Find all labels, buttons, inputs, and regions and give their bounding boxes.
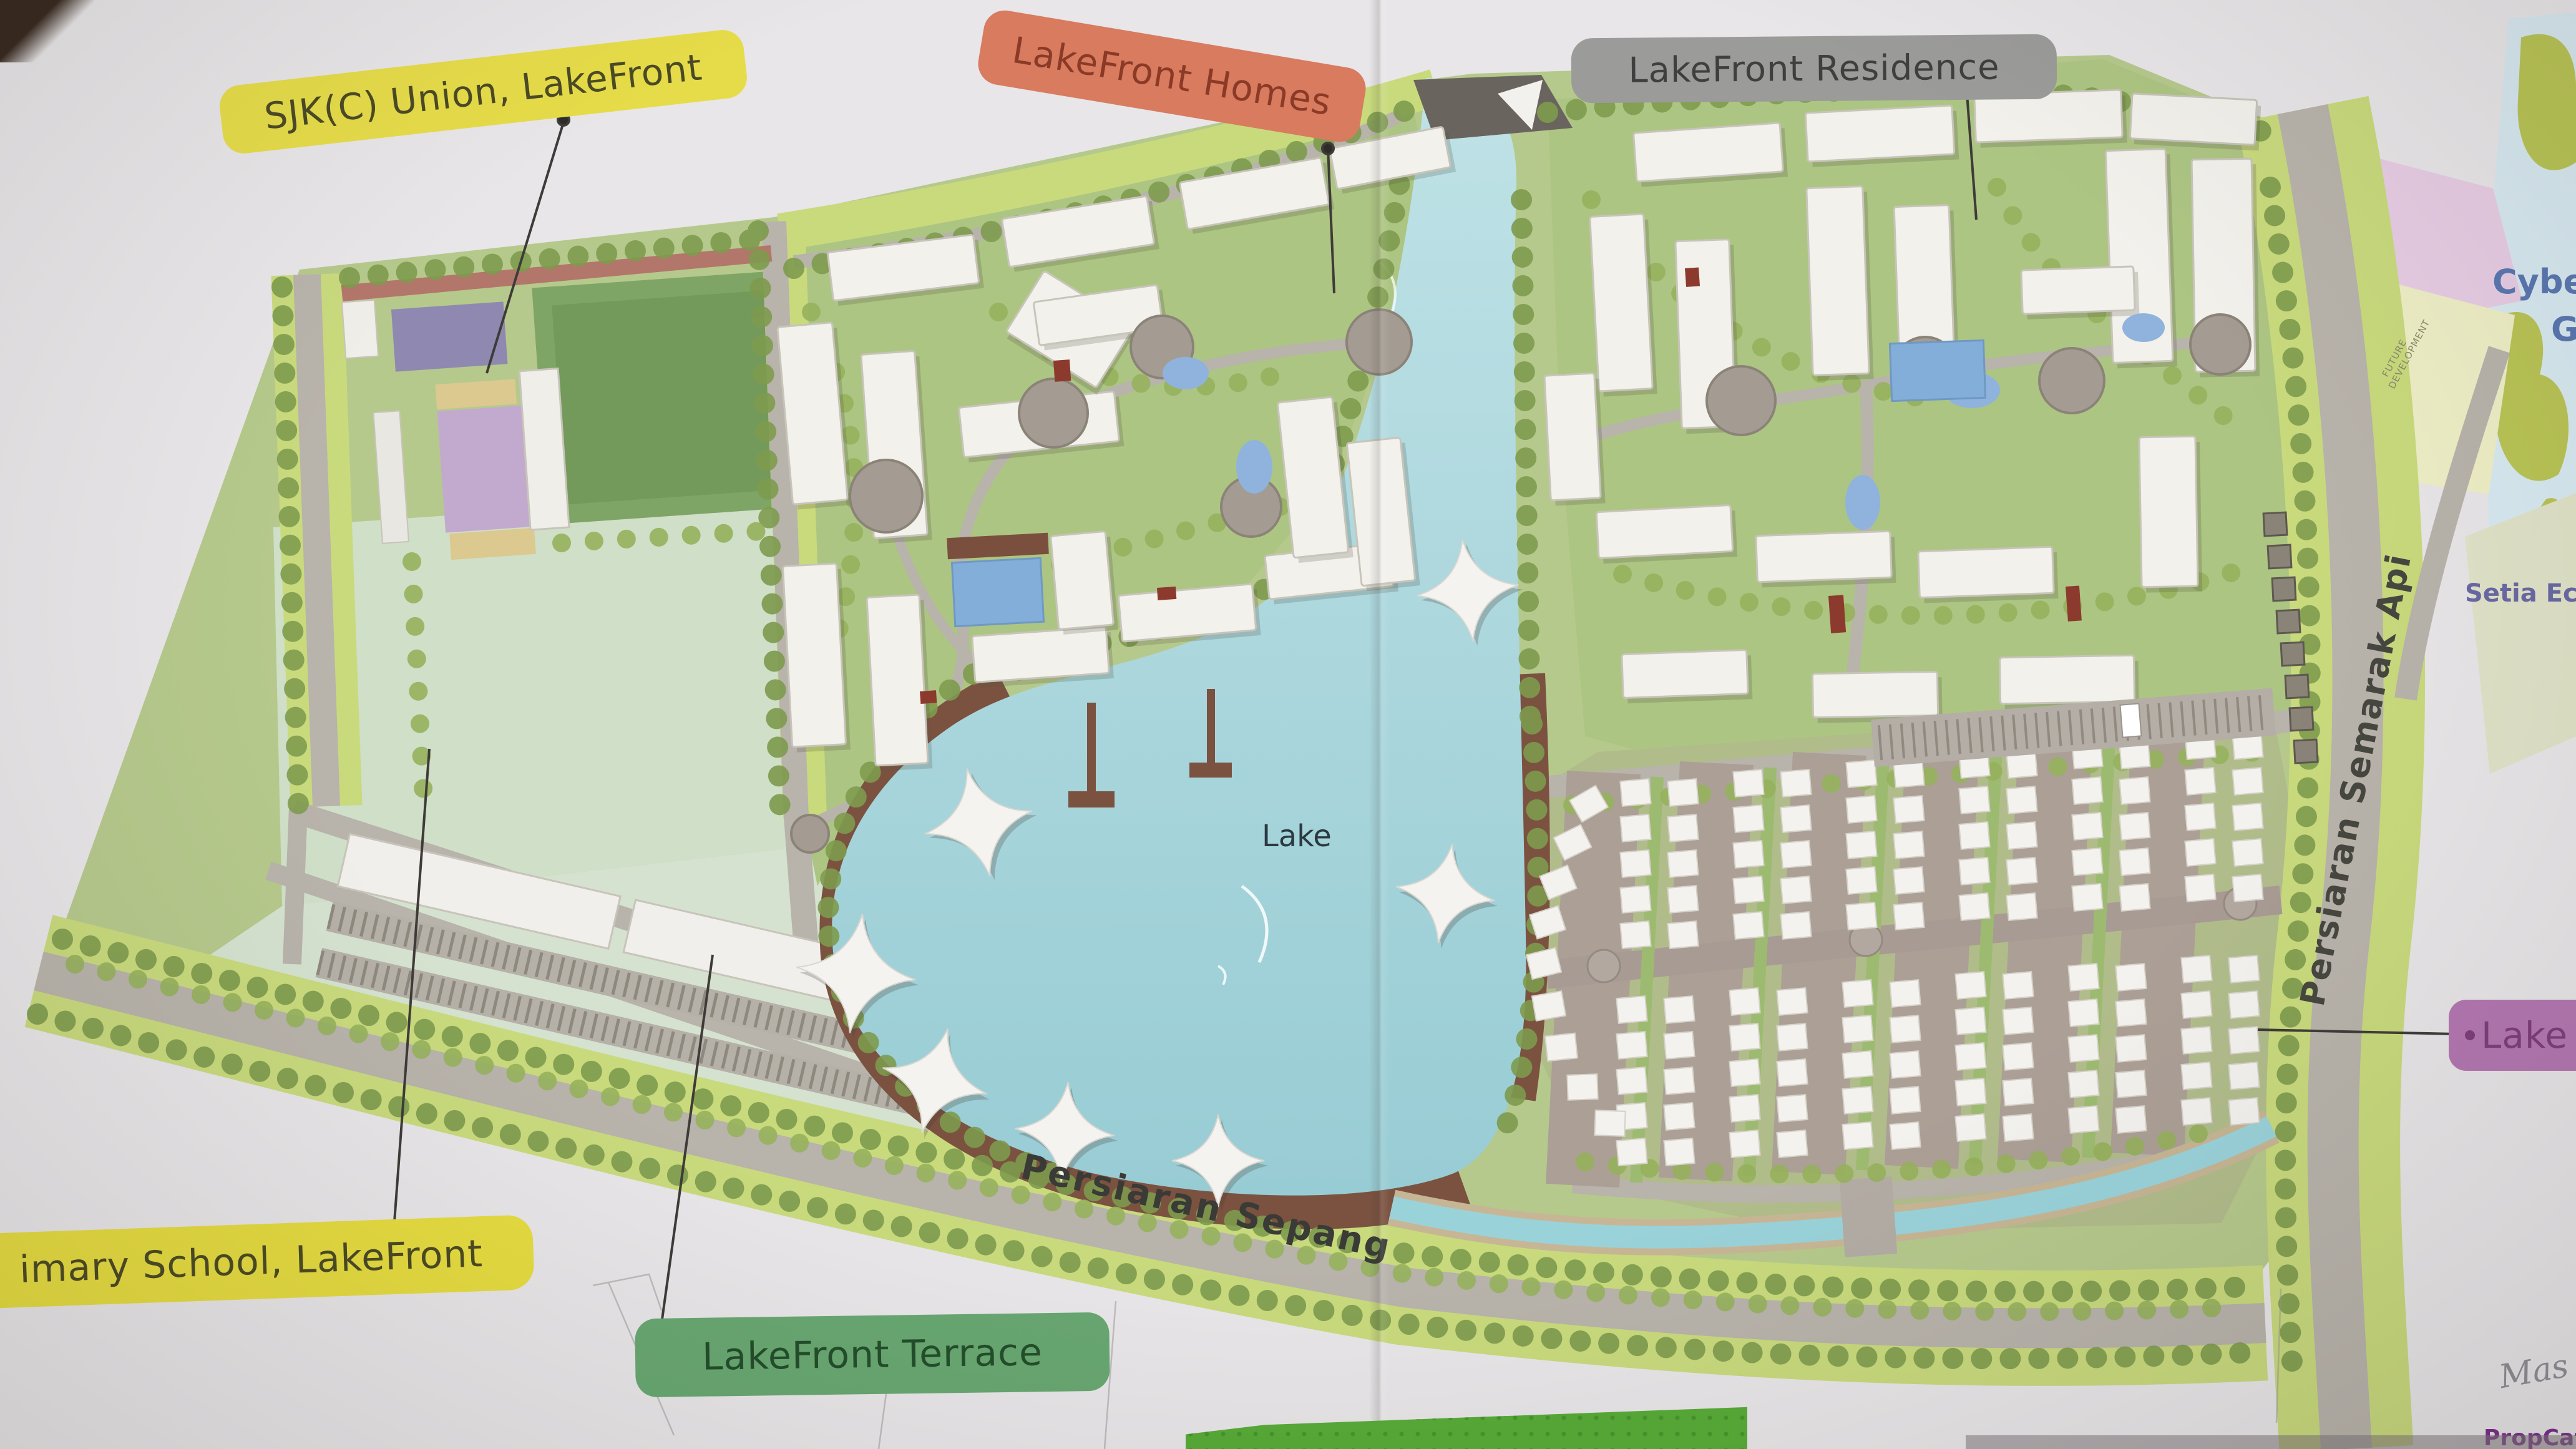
label-cyber: Cyber (2492, 262, 2576, 301)
callout-lakefront-residence: LakeFront Residence (1571, 34, 2057, 104)
callout-lake-right: Lake (2449, 1000, 2576, 1071)
leader-dot (2465, 1030, 2475, 1040)
brochure-photo: SJK(C) Union, LakeFront LakeFront Homes … (0, 0, 2576, 1449)
callout-lakefront-terrace: LakeFront Terrace (635, 1312, 1110, 1398)
watermark: PropCafe.Net (2484, 1425, 2576, 1449)
label-g: G (2551, 310, 2576, 349)
label-lake: Lake (1262, 819, 1332, 854)
label-setia-eco: Setia Ec (2465, 579, 2576, 608)
